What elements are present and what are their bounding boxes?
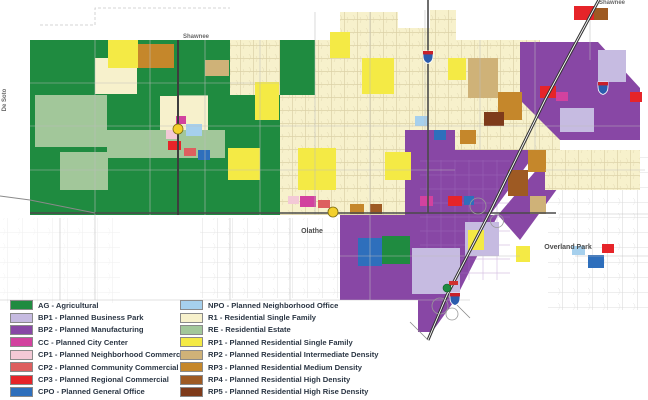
legend-item-NPO: NPO - Planned Neighborhood Office bbox=[180, 299, 480, 311]
legend-label-RP2: RP2 - Planned Residential Intermediate D… bbox=[208, 350, 379, 359]
zoning-map: Shawnee Shawnee De Soto Olathe Overland … bbox=[0, 0, 648, 345]
legend-item-RP5: RP5 - Planned Residential High Rise Dens… bbox=[180, 386, 480, 398]
legend-label-RP3: RP3 - Planned Residential Medium Density bbox=[208, 363, 362, 372]
legend-swatch-NPO bbox=[180, 300, 203, 310]
legend-item-RP2: RP2 - Planned Residential Intermediate D… bbox=[180, 349, 480, 361]
interstate-shield-east bbox=[598, 82, 608, 95]
olathe-streets bbox=[200, 218, 350, 298]
legend-label-BP1: BP1 - Planned Business Park bbox=[38, 313, 144, 322]
legend-label-CP3: CP3 - Planned Regional Commercial bbox=[38, 375, 169, 384]
legend-label-CC: CC - Planned City Center bbox=[38, 338, 128, 347]
legend-label-RP4: RP4 - Planned Residential High Density bbox=[208, 375, 350, 384]
legend-swatch-CP1 bbox=[10, 350, 33, 360]
city-label-desoto: De Soto bbox=[2, 88, 8, 111]
city-label-shawnee: Shawnee bbox=[183, 34, 210, 40]
legend-item-AG: AG - Agricultural bbox=[10, 299, 180, 311]
legend-swatch-RP2 bbox=[180, 350, 203, 360]
legend-item-CC: CC - Planned City Center bbox=[10, 336, 180, 348]
legend-swatch-AG bbox=[10, 300, 33, 310]
legend-item-R1: R1 - Residential Single Family bbox=[180, 311, 480, 323]
legend-item-BP1: BP1 - Planned Business Park bbox=[10, 311, 180, 323]
state-route-shield-center bbox=[328, 207, 338, 217]
legend-swatch-CPO bbox=[10, 387, 33, 397]
legend-item-CP2: CP2 - Planned Community Commercial bbox=[10, 361, 180, 373]
legend-swatch-RP1 bbox=[180, 337, 203, 347]
legend-label-AG: AG - Agricultural bbox=[38, 301, 98, 310]
legend-label-BP2: BP2 - Planned Manufacturing bbox=[38, 325, 143, 334]
legend-column-left: AG - AgriculturalBP1 - Planned Business … bbox=[10, 299, 180, 398]
legend-label-CP1: CP1 - Planned Neighborhood Commercial bbox=[38, 350, 189, 359]
legend-label-NPO: NPO - Planned Neighborhood Office bbox=[208, 301, 338, 310]
legend-label-CP2: CP2 - Planned Community Commercial bbox=[38, 363, 179, 372]
legend-column-right: NPO - Planned Neighborhood OfficeR1 - Re… bbox=[180, 299, 480, 398]
legend-item-CP1: CP1 - Planned Neighborhood Commercial bbox=[10, 349, 180, 361]
legend-swatch-CP3 bbox=[10, 375, 33, 385]
legend-swatch-BP1 bbox=[10, 313, 33, 323]
legend-swatch-CC bbox=[10, 337, 33, 347]
legend-swatch-BP2 bbox=[10, 325, 33, 335]
legend-label-RP5: RP5 - Planned Residential High Rise Dens… bbox=[208, 387, 368, 396]
legend-label-RE: RE - Residential Estate bbox=[208, 325, 291, 334]
interstate-shield-north bbox=[423, 51, 433, 64]
legend-item-CP3: CP3 - Planned Regional Commercial bbox=[10, 373, 180, 385]
city-label-olathe: Olathe bbox=[301, 228, 323, 235]
legend-item-RP3: RP3 - Planned Residential Medium Density bbox=[180, 361, 480, 373]
legend-item-CPO: CPO - Planned General Office bbox=[10, 386, 180, 398]
legend-item-BP2: BP2 - Planned Manufacturing bbox=[10, 324, 180, 336]
legend-swatch-RP4 bbox=[180, 375, 203, 385]
map-canvas: Shawnee Shawnee De Soto Olathe Overland … bbox=[0, 0, 648, 345]
legend-swatch-RP3 bbox=[180, 362, 203, 372]
legend-label-R1: R1 - Residential Single Family bbox=[208, 313, 316, 322]
city-label-overland-park: Overland Park bbox=[544, 244, 592, 251]
legend-label-CPO: CPO - Planned General Office bbox=[38, 387, 145, 396]
legend-swatch-R1 bbox=[180, 313, 203, 323]
legend-swatch-RP5 bbox=[180, 387, 203, 397]
legend-item-RP4: RP4 - Planned Residential High Density bbox=[180, 373, 480, 385]
legend-label-RP1: RP1 - Planned Residential Single Family bbox=[208, 338, 353, 347]
state-route-shield-k7 bbox=[173, 124, 183, 134]
legend-swatch-CP2 bbox=[10, 362, 33, 372]
legend-item-RE: RE - Residential Estate bbox=[180, 324, 480, 336]
legend-item-RP1: RP1 - Planned Residential Single Family bbox=[180, 336, 480, 348]
map-legend: AG - AgriculturalBP1 - Planned Business … bbox=[10, 299, 640, 398]
city-label-shawnee-corner: Shawnee bbox=[599, 0, 626, 6]
legend-swatch-RE bbox=[180, 325, 203, 335]
